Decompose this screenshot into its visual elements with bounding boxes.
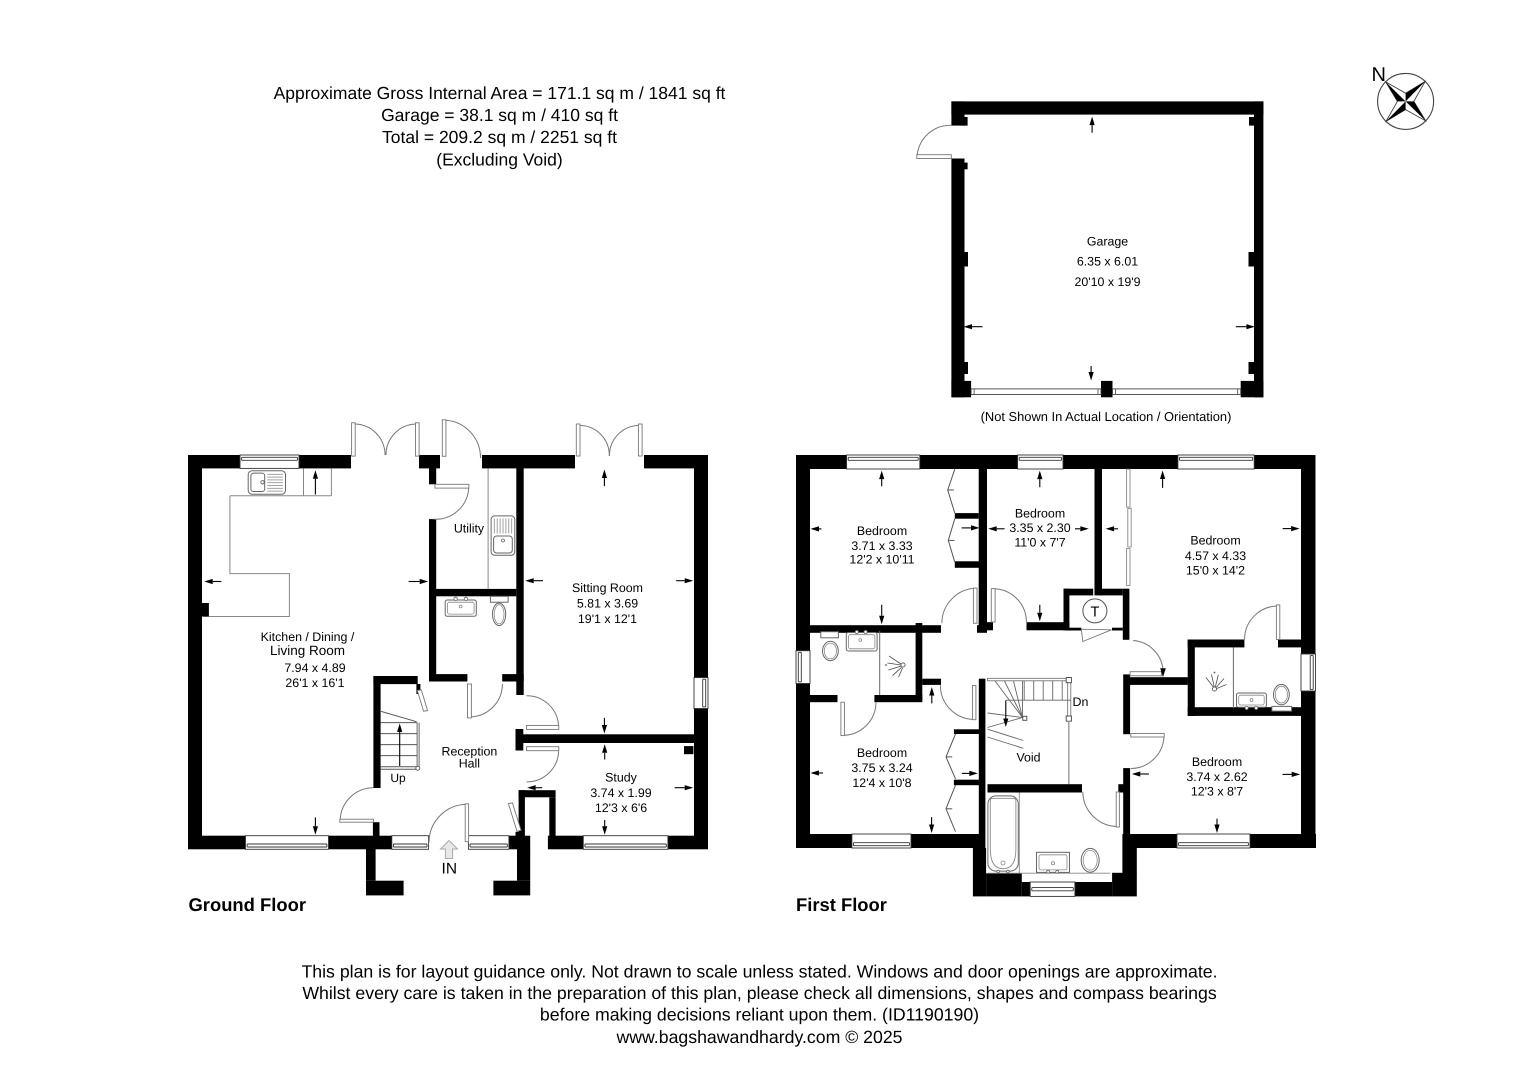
svg-text:Living Room: Living Room (270, 643, 345, 658)
svg-text:Up: Up (390, 771, 406, 785)
svg-text:11'0 x 7'7: 11'0 x 7'7 (1014, 536, 1065, 550)
svg-text:Bedroom: Bedroom (1015, 507, 1065, 521)
svg-text:www.bagshawandhardy.com © 2025: www.bagshawandhardy.com © 2025 (615, 1027, 902, 1047)
svg-text:This plan is for layout guidan: This plan is for layout guidance only. N… (301, 962, 1217, 982)
svg-text:Bedroom: Bedroom (857, 524, 907, 538)
svg-text:Ground Floor: Ground Floor (189, 894, 306, 915)
svg-text:T: T (1090, 604, 1099, 620)
svg-text:First Floor: First Floor (796, 894, 887, 915)
svg-text:12'2 x 10'11: 12'2 x 10'11 (849, 553, 914, 567)
svg-text:Hall: Hall (459, 757, 480, 771)
svg-text:3.35 x 2.30: 3.35 x 2.30 (1009, 521, 1070, 535)
svg-text:Total = 209.2 sq m / 2251 sq f: Total = 209.2 sq m / 2251 sq ft (382, 127, 617, 147)
svg-text:5.81 x 3.69: 5.81 x 3.69 (577, 597, 638, 611)
svg-text:(Excluding Void): (Excluding Void) (436, 150, 562, 170)
svg-text:6.35 x 6.01: 6.35 x 6.01 (1077, 255, 1138, 269)
svg-text:IN: IN (442, 861, 458, 878)
svg-text:3.74 x 1.99: 3.74 x 1.99 (590, 786, 651, 800)
svg-text:Void: Void (1016, 751, 1040, 765)
svg-text:Study: Study (605, 771, 637, 785)
svg-text:15'0 x 14'2: 15'0 x 14'2 (1186, 564, 1245, 578)
svg-text:Bedroom: Bedroom (1190, 534, 1240, 548)
svg-text:(Not Shown In Actual Location: (Not Shown In Actual Location / Orientat… (981, 409, 1232, 424)
svg-text:Bedroom: Bedroom (1192, 755, 1242, 769)
svg-text:Approximate Gross Internal Are: Approximate Gross Internal Area = 171.1 … (274, 83, 726, 103)
svg-text:19'1 x 12'1: 19'1 x 12'1 (578, 612, 637, 626)
svg-text:Garage: Garage (1087, 235, 1128, 249)
svg-text:Utility: Utility (454, 522, 485, 536)
svg-text:20'10 x 19'9: 20'10 x 19'9 (1074, 275, 1140, 289)
svg-text:Bedroom: Bedroom (857, 746, 907, 760)
svg-text:3.74 x 2.62: 3.74 x 2.62 (1186, 770, 1247, 784)
svg-text:N: N (1371, 64, 1385, 86)
svg-text:Sitting Room: Sitting Room (572, 581, 643, 595)
svg-text:3.75 x 3.24: 3.75 x 3.24 (851, 761, 912, 775)
svg-text:7.94 x 4.89: 7.94 x 4.89 (284, 661, 345, 675)
svg-text:Dn: Dn (1073, 695, 1089, 709)
svg-text:12'3 x 8'7: 12'3 x 8'7 (1191, 785, 1243, 799)
svg-text:12'3 x 6'6: 12'3 x 6'6 (595, 801, 647, 815)
svg-text:Whilst every care is taken in: Whilst every care is taken in the prepar… (302, 983, 1216, 1003)
svg-text:4.57 x 4.33: 4.57 x 4.33 (1185, 549, 1246, 563)
svg-text:26'1 x 16'1: 26'1 x 16'1 (285, 676, 344, 690)
svg-text:Kitchen / Dining /: Kitchen / Dining / (261, 630, 355, 644)
svg-text:12'4 x 10'8: 12'4 x 10'8 (852, 776, 911, 790)
svg-text:3.71 x 3.33: 3.71 x 3.33 (851, 539, 912, 553)
svg-text:before making decisions relian: before making decisions reliant upon the… (540, 1005, 979, 1025)
svg-text:Garage = 38.1 sq m / 410 sq ft: Garage = 38.1 sq m / 410 sq ft (381, 105, 618, 125)
